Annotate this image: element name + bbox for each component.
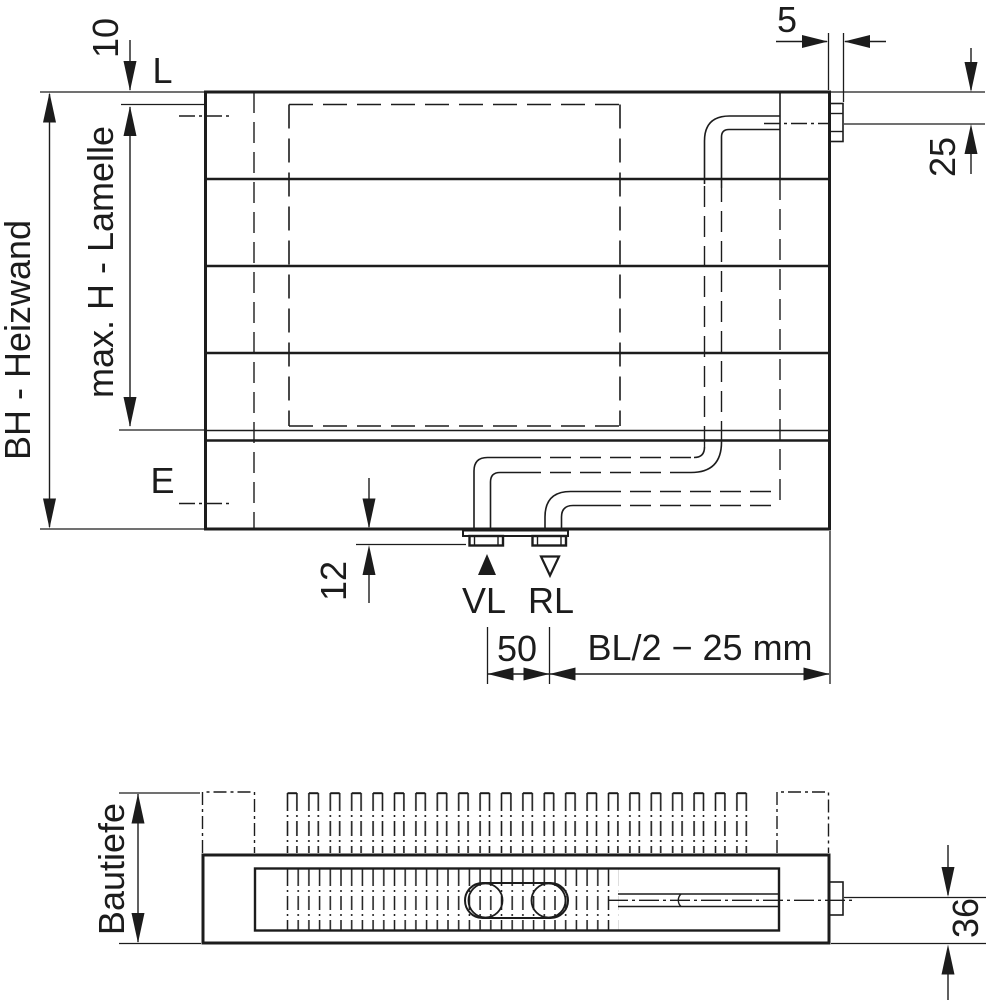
- dim-label-stub-position: BL/2 − 25 mm: [587, 627, 812, 668]
- hidden-channel-lines: [254, 92, 780, 529]
- front-view: 10 L BH - Heizwand max. H - Lamelle E 5 …: [0, 0, 985, 684]
- connection-stubs: [463, 531, 568, 546]
- centerline-marks: [179, 116, 829, 504]
- radiator-body-outline: [206, 92, 830, 529]
- supply-flow-icon: [478, 554, 496, 575]
- return-flow-icon: [541, 557, 559, 576]
- phantom-end-box-left: [203, 792, 255, 853]
- dim-label-lamelle-top-offset: 10: [85, 18, 126, 58]
- dim-label-build-height: BH - Heizwand: [0, 220, 38, 460]
- dim-label-vent-axis-offset: 25: [922, 137, 963, 177]
- plan-pipe-slot: [608, 882, 853, 915]
- plan-view: Bautiefe 36: [91, 792, 986, 1000]
- convector-fins: [203, 792, 829, 930]
- dim-label-stub-protrusion: 12: [313, 561, 354, 601]
- label-supply: VL: [462, 580, 506, 621]
- dim-label-max-lamelle-height: max. H - Lamelle: [80, 126, 121, 398]
- label-connection-line: E: [150, 460, 174, 501]
- label-lamelle-top-line: L: [152, 50, 172, 91]
- radiator-technical-drawing-page: 10 L BH - Heizwand max. H - Lamelle E 5 …: [0, 0, 1000, 1000]
- dim-label-pipe-axis-offset: 36: [945, 898, 986, 938]
- dim-label-stub-spacing: 50: [497, 628, 537, 669]
- dim-label-build-depth: Bautiefe: [91, 803, 132, 935]
- radiator-technical-drawing: 10 L BH - Heizwand max. H - Lamelle E 5 …: [0, 0, 1000, 1000]
- dim-label-vent-protrusion: 5: [777, 0, 797, 40]
- flow-direction-markers: [478, 554, 559, 576]
- label-return: RL: [528, 580, 574, 621]
- plan-vent-nipple: [830, 882, 844, 915]
- vent-nipple: [830, 104, 844, 142]
- phantom-end-box-right: [777, 792, 829, 853]
